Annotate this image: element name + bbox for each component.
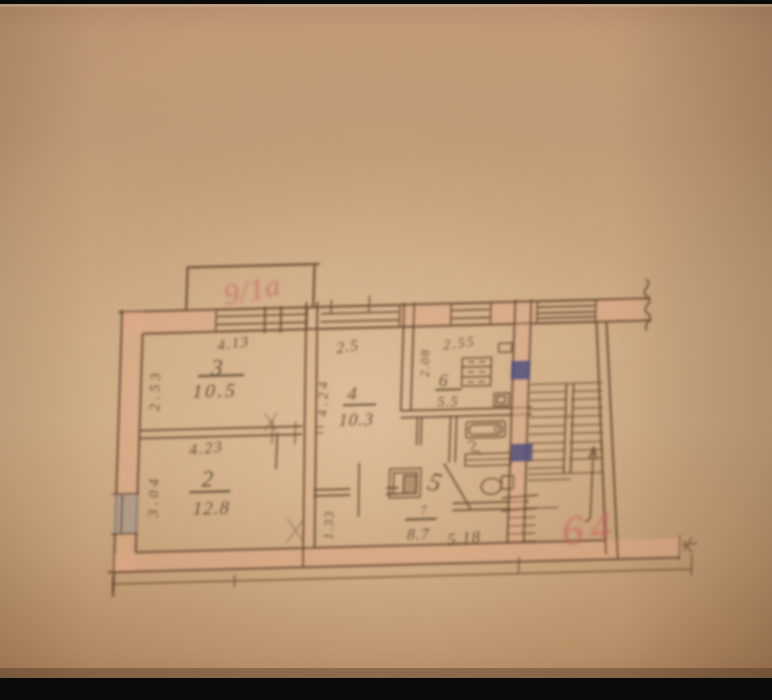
svg-text:10.3: 10.3 — [338, 409, 374, 430]
svg-text:4: 4 — [347, 384, 358, 405]
svg-text:6: 6 — [438, 371, 448, 391]
svg-text:1.33: 1.33 — [321, 510, 337, 540]
svg-text:3: 3 — [210, 355, 223, 380]
svg-text:4.24: 4.24 — [316, 378, 332, 417]
svg-text:2.08: 2.08 — [417, 348, 433, 377]
svg-text:5.5: 5.5 — [437, 394, 459, 411]
svg-text:12.8: 12.8 — [193, 498, 231, 520]
svg-text:10.5: 10.5 — [192, 380, 238, 403]
svg-text:8.7: 8.7 — [407, 526, 431, 544]
svg-text:5.18: 5.18 — [447, 527, 481, 549]
svg-text:2.53: 2.53 — [147, 369, 164, 412]
svg-text:2: 2 — [201, 467, 213, 492]
svg-text:64: 64 — [560, 502, 620, 556]
svg-text:3.04: 3.04 — [146, 475, 163, 519]
